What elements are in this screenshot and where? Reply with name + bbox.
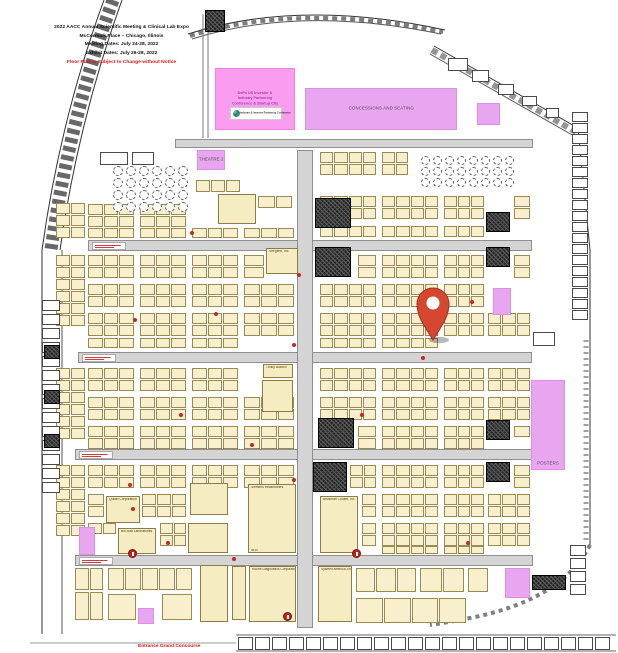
booth[interactable] — [88, 409, 103, 420]
booth[interactable] — [223, 228, 238, 238]
booth[interactable] — [458, 368, 471, 379]
booth[interactable] — [471, 313, 484, 324]
booth[interactable] — [444, 409, 457, 420]
booth[interactable] — [104, 380, 119, 391]
booth[interactable] — [208, 426, 223, 437]
booth[interactable] — [71, 416, 85, 427]
booth[interactable] — [488, 380, 501, 391]
booth[interactable] — [223, 338, 238, 348]
booth[interactable] — [140, 338, 155, 348]
booth[interactable] — [411, 226, 424, 237]
booth[interactable] — [411, 368, 424, 379]
booth[interactable] — [320, 380, 333, 391]
booth[interactable] — [334, 313, 347, 324]
booth[interactable] — [119, 380, 134, 391]
booth[interactable] — [156, 216, 171, 227]
booth[interactable] — [382, 296, 395, 307]
booth[interactable] — [104, 284, 119, 295]
booth[interactable] — [208, 338, 223, 348]
booth[interactable] — [411, 208, 424, 219]
booth[interactable] — [104, 438, 119, 449]
booth[interactable] — [192, 228, 207, 238]
booth[interactable] — [192, 284, 207, 295]
booth[interactable] — [71, 380, 85, 391]
booth[interactable] — [396, 226, 409, 237]
booth[interactable] — [502, 494, 515, 505]
booth[interactable] — [157, 494, 171, 505]
booth[interactable] — [320, 338, 333, 348]
exhibitor-booth[interactable]: Siemens Healthineers3613 — [248, 484, 296, 553]
booth[interactable] — [425, 208, 438, 219]
booth[interactable] — [142, 506, 156, 517]
booth[interactable] — [471, 438, 484, 449]
booth[interactable] — [278, 325, 294, 336]
booth[interactable] — [396, 338, 409, 348]
booth[interactable] — [334, 284, 347, 295]
booth[interactable] — [156, 267, 171, 278]
booth[interactable] — [244, 267, 264, 278]
booth[interactable] — [119, 313, 134, 324]
booth[interactable] — [156, 477, 171, 488]
booth[interactable] — [358, 255, 376, 266]
booth[interactable] — [208, 368, 223, 379]
booth[interactable] — [411, 506, 424, 517]
booth[interactable] — [458, 380, 471, 391]
booth[interactable] — [349, 325, 362, 336]
booth[interactable] — [208, 284, 223, 295]
booth[interactable] — [356, 598, 383, 623]
booth[interactable] — [349, 164, 362, 175]
booth[interactable] — [244, 325, 260, 336]
booth[interactable] — [157, 506, 171, 517]
booth[interactable] — [223, 255, 238, 266]
booth[interactable] — [444, 208, 457, 219]
booth[interactable] — [140, 325, 155, 336]
booth[interactable] — [56, 255, 70, 266]
booth[interactable] — [71, 291, 85, 302]
booth[interactable] — [382, 465, 395, 476]
booth[interactable] — [119, 477, 134, 488]
booth[interactable] — [358, 426, 376, 437]
booth[interactable] — [192, 296, 207, 307]
booth[interactable] — [382, 477, 395, 488]
booth[interactable] — [412, 598, 439, 623]
booth[interactable] — [244, 284, 260, 295]
booth[interactable] — [382, 284, 395, 295]
booth[interactable] — [320, 296, 333, 307]
booth[interactable] — [119, 228, 134, 238]
booth[interactable] — [471, 477, 484, 488]
booth[interactable] — [349, 284, 362, 295]
booth[interactable] — [171, 284, 186, 295]
booth[interactable] — [196, 180, 210, 192]
booth[interactable] — [444, 380, 457, 391]
booth[interactable] — [502, 380, 515, 391]
booth[interactable] — [396, 546, 409, 554]
booth[interactable] — [363, 325, 376, 336]
booth[interactable] — [320, 164, 333, 175]
booth[interactable] — [425, 255, 438, 266]
booth[interactable] — [471, 465, 484, 476]
booth[interactable] — [159, 568, 175, 590]
booth[interactable] — [444, 546, 457, 554]
booth[interactable] — [425, 380, 438, 391]
booth[interactable] — [502, 535, 515, 546]
booth[interactable] — [397, 568, 416, 592]
zone-small-bottom[interactable] — [138, 608, 154, 624]
booth[interactable] — [334, 338, 347, 348]
booth[interactable] — [171, 477, 186, 488]
booth[interactable] — [350, 477, 363, 488]
booth[interactable] — [88, 325, 103, 336]
booth[interactable] — [223, 465, 238, 476]
booth[interactable] — [244, 409, 260, 420]
booth[interactable] — [362, 535, 376, 546]
booth[interactable] — [71, 255, 85, 266]
booth[interactable] — [88, 204, 103, 215]
booth[interactable] — [444, 397, 457, 408]
booth[interactable] — [56, 215, 70, 226]
booth[interactable] — [320, 325, 333, 336]
booth[interactable] — [140, 296, 155, 307]
booth[interactable] — [382, 196, 395, 207]
booth[interactable] — [362, 523, 376, 534]
booth[interactable] — [258, 196, 275, 208]
booth[interactable] — [444, 267, 457, 278]
booth[interactable] — [56, 203, 70, 214]
booth[interactable] — [363, 368, 376, 379]
booth[interactable] — [425, 196, 438, 207]
booth[interactable] — [156, 255, 171, 266]
booth[interactable] — [396, 523, 409, 534]
booth[interactable] — [140, 313, 155, 324]
booth[interactable] — [444, 535, 457, 546]
booth[interactable] — [208, 255, 223, 266]
zone-small-top-right[interactable] — [477, 103, 500, 125]
booth[interactable] — [104, 267, 119, 278]
booth[interactable] — [140, 409, 155, 420]
booth[interactable] — [140, 368, 155, 379]
booth[interactable] — [226, 180, 240, 192]
booth[interactable] — [514, 255, 530, 266]
booth[interactable] — [363, 152, 376, 163]
booth[interactable] — [358, 267, 376, 278]
booth[interactable] — [376, 568, 395, 592]
booth[interactable] — [334, 152, 347, 163]
booth[interactable] — [223, 325, 238, 336]
booth[interactable] — [90, 592, 104, 620]
booth[interactable] — [119, 368, 134, 379]
booth[interactable] — [140, 267, 155, 278]
booth[interactable] — [514, 267, 530, 278]
booth[interactable] — [71, 513, 85, 524]
booth[interactable] — [71, 303, 85, 314]
booth[interactable] — [471, 409, 484, 420]
booth[interactable] — [171, 313, 186, 324]
booth[interactable] — [382, 164, 395, 175]
booth[interactable] — [104, 325, 119, 336]
booth[interactable] — [349, 296, 362, 307]
booth[interactable] — [349, 152, 362, 163]
booth[interactable] — [425, 477, 438, 488]
booth[interactable] — [71, 215, 85, 226]
booth[interactable] — [382, 535, 395, 546]
booth[interactable] — [458, 255, 471, 266]
booth[interactable] — [444, 438, 457, 449]
booth[interactable] — [156, 284, 171, 295]
booth[interactable] — [119, 409, 134, 420]
booth[interactable] — [458, 494, 471, 505]
booth[interactable] — [171, 426, 186, 437]
booth[interactable] — [156, 380, 171, 391]
booth[interactable] — [211, 180, 225, 192]
booth[interactable] — [349, 380, 362, 391]
booth[interactable] — [171, 438, 186, 449]
exhibitor-booth[interactable] — [232, 566, 246, 620]
booth[interactable] — [396, 438, 409, 449]
booth[interactable] — [208, 267, 223, 278]
booth[interactable] — [172, 494, 186, 505]
booth[interactable] — [104, 477, 119, 488]
booth[interactable] — [88, 313, 103, 324]
booth[interactable] — [223, 368, 238, 379]
booth[interactable] — [425, 226, 438, 237]
booth[interactable] — [411, 477, 424, 488]
booth[interactable] — [320, 368, 333, 379]
booth[interactable] — [56, 227, 70, 238]
booth[interactable] — [517, 523, 530, 534]
booth[interactable] — [382, 226, 395, 237]
exhibitor-booth[interactable]: Sysmex America, Inc. — [318, 566, 352, 622]
exhibitor-booth[interactable]: Seegene, Inc. — [266, 248, 298, 274]
booth[interactable] — [192, 267, 207, 278]
booth[interactable] — [261, 284, 277, 295]
booth[interactable] — [171, 380, 186, 391]
booth[interactable] — [244, 426, 260, 437]
booth[interactable] — [471, 208, 484, 219]
booth[interactable] — [382, 152, 395, 163]
booth[interactable] — [278, 438, 294, 449]
booth[interactable] — [278, 313, 294, 324]
booth[interactable] — [364, 465, 377, 476]
booth[interactable] — [88, 368, 103, 379]
booth[interactable] — [471, 368, 484, 379]
booth[interactable] — [119, 267, 134, 278]
booth[interactable] — [56, 525, 70, 536]
booth[interactable] — [363, 397, 376, 408]
booth[interactable] — [471, 255, 484, 266]
booth[interactable] — [396, 380, 409, 391]
booth[interactable] — [396, 506, 409, 517]
booth[interactable] — [396, 196, 409, 207]
booth[interactable] — [471, 397, 484, 408]
booth[interactable] — [171, 296, 186, 307]
booth[interactable] — [223, 397, 238, 408]
booth[interactable] — [514, 196, 530, 207]
booth[interactable] — [488, 368, 501, 379]
booth[interactable] — [140, 255, 155, 266]
booth[interactable] — [174, 523, 187, 534]
booth[interactable] — [362, 494, 376, 505]
booth[interactable] — [244, 228, 260, 238]
booth[interactable] — [119, 255, 134, 266]
booth[interactable] — [192, 338, 207, 348]
booth[interactable] — [514, 426, 530, 437]
booth[interactable] — [411, 494, 424, 505]
booth[interactable] — [488, 523, 501, 534]
booth[interactable] — [471, 380, 484, 391]
booth[interactable] — [88, 506, 104, 517]
booth[interactable] — [261, 426, 277, 437]
booth[interactable] — [192, 325, 207, 336]
booth[interactable] — [488, 325, 501, 336]
booth[interactable] — [208, 409, 223, 420]
booth[interactable] — [119, 284, 134, 295]
booth[interactable] — [119, 397, 134, 408]
booth[interactable] — [517, 409, 530, 420]
booth[interactable] — [223, 313, 238, 324]
booth[interactable] — [471, 325, 484, 336]
booth[interactable] — [71, 227, 85, 238]
exhibitor-booth[interactable] — [188, 523, 228, 553]
booth[interactable] — [223, 296, 238, 307]
exhibitor-booth[interactable] — [262, 380, 293, 412]
booth[interactable] — [458, 397, 471, 408]
booth[interactable] — [71, 267, 85, 278]
booth[interactable] — [382, 397, 395, 408]
booth[interactable] — [104, 409, 119, 420]
booth[interactable] — [192, 368, 207, 379]
booth[interactable] — [171, 216, 186, 227]
booth[interactable] — [382, 523, 395, 534]
booth[interactable] — [425, 494, 438, 505]
booth[interactable] — [244, 313, 260, 324]
booth[interactable] — [334, 397, 347, 408]
booth[interactable] — [88, 465, 103, 476]
booth[interactable] — [320, 313, 333, 324]
booth[interactable] — [223, 426, 238, 437]
zone-posters[interactable]: POSTERS — [531, 380, 565, 470]
booth[interactable] — [104, 216, 119, 227]
booth[interactable] — [411, 409, 424, 420]
booth[interactable] — [443, 568, 465, 592]
booth[interactable] — [103, 523, 117, 534]
booth[interactable] — [349, 397, 362, 408]
booth[interactable] — [425, 426, 438, 437]
booth[interactable] — [192, 465, 207, 476]
booth[interactable] — [162, 594, 192, 620]
booth[interactable] — [56, 279, 70, 290]
booth[interactable] — [334, 325, 347, 336]
booth[interactable] — [156, 409, 171, 420]
booth[interactable] — [411, 546, 424, 554]
booth[interactable] — [71, 203, 85, 214]
booth[interactable] — [411, 535, 424, 546]
booth[interactable] — [425, 523, 438, 534]
booth[interactable] — [364, 477, 377, 488]
booth[interactable] — [488, 397, 501, 408]
booth[interactable] — [244, 296, 260, 307]
booth[interactable] — [356, 568, 375, 592]
booth[interactable] — [382, 325, 395, 336]
booth[interactable] — [140, 426, 155, 437]
booth[interactable] — [75, 568, 89, 590]
booth[interactable] — [444, 196, 457, 207]
booth[interactable] — [382, 506, 395, 517]
booth[interactable] — [320, 152, 333, 163]
booth[interactable] — [396, 152, 409, 163]
booth[interactable] — [362, 506, 376, 517]
booth[interactable] — [71, 279, 85, 290]
booth[interactable] — [382, 255, 395, 266]
exhibitor-booth[interactable] — [218, 194, 256, 224]
booth[interactable] — [396, 208, 409, 219]
booth[interactable] — [396, 164, 409, 175]
zone-small-left[interactable] — [79, 527, 95, 555]
booth[interactable] — [71, 489, 85, 500]
booth[interactable] — [261, 438, 277, 449]
booth[interactable] — [411, 438, 424, 449]
booth[interactable] — [160, 523, 173, 534]
booth[interactable] — [411, 380, 424, 391]
booth[interactable] — [278, 284, 294, 295]
booth[interactable] — [88, 216, 103, 227]
booth[interactable] — [363, 164, 376, 175]
zone-theatre2[interactable]: THEATRE 2 — [197, 150, 225, 170]
booth[interactable] — [363, 208, 376, 219]
booth[interactable] — [517, 506, 530, 517]
booth[interactable] — [444, 368, 457, 379]
booth[interactable] — [349, 368, 362, 379]
booth[interactable] — [244, 255, 264, 266]
booth[interactable] — [156, 325, 171, 336]
booth[interactable] — [88, 284, 103, 295]
booth[interactable] — [88, 380, 103, 391]
booth[interactable] — [119, 465, 134, 476]
booth[interactable] — [471, 494, 484, 505]
booth[interactable] — [208, 325, 223, 336]
booth[interactable] — [156, 465, 171, 476]
booth[interactable] — [119, 325, 134, 336]
booth[interactable] — [458, 196, 471, 207]
booth[interactable] — [156, 397, 171, 408]
booth[interactable] — [244, 397, 260, 408]
booth[interactable] — [140, 284, 155, 295]
booth[interactable] — [208, 465, 223, 476]
zone-concessions[interactable]: CONCESSIONS AND SEATING — [305, 88, 457, 130]
booth[interactable] — [425, 535, 438, 546]
location-pin[interactable] — [403, 278, 463, 338]
booth[interactable] — [108, 594, 136, 620]
booth[interactable] — [444, 523, 457, 534]
booth[interactable] — [382, 546, 395, 554]
booth[interactable] — [349, 313, 362, 324]
booth[interactable] — [71, 501, 85, 512]
booth[interactable] — [517, 535, 530, 546]
booth[interactable] — [363, 313, 376, 324]
booth[interactable] — [363, 226, 376, 237]
booth[interactable] — [517, 325, 530, 336]
booth[interactable] — [382, 368, 395, 379]
booth[interactable] — [439, 598, 466, 623]
booth[interactable] — [411, 196, 424, 207]
exhibitor-booth[interactable]: Beckman Coulter, Inc. — [320, 496, 358, 553]
booth[interactable] — [104, 368, 119, 379]
booth[interactable] — [71, 477, 85, 488]
booth[interactable] — [382, 208, 395, 219]
booth[interactable] — [88, 426, 103, 437]
booth[interactable] — [396, 494, 409, 505]
